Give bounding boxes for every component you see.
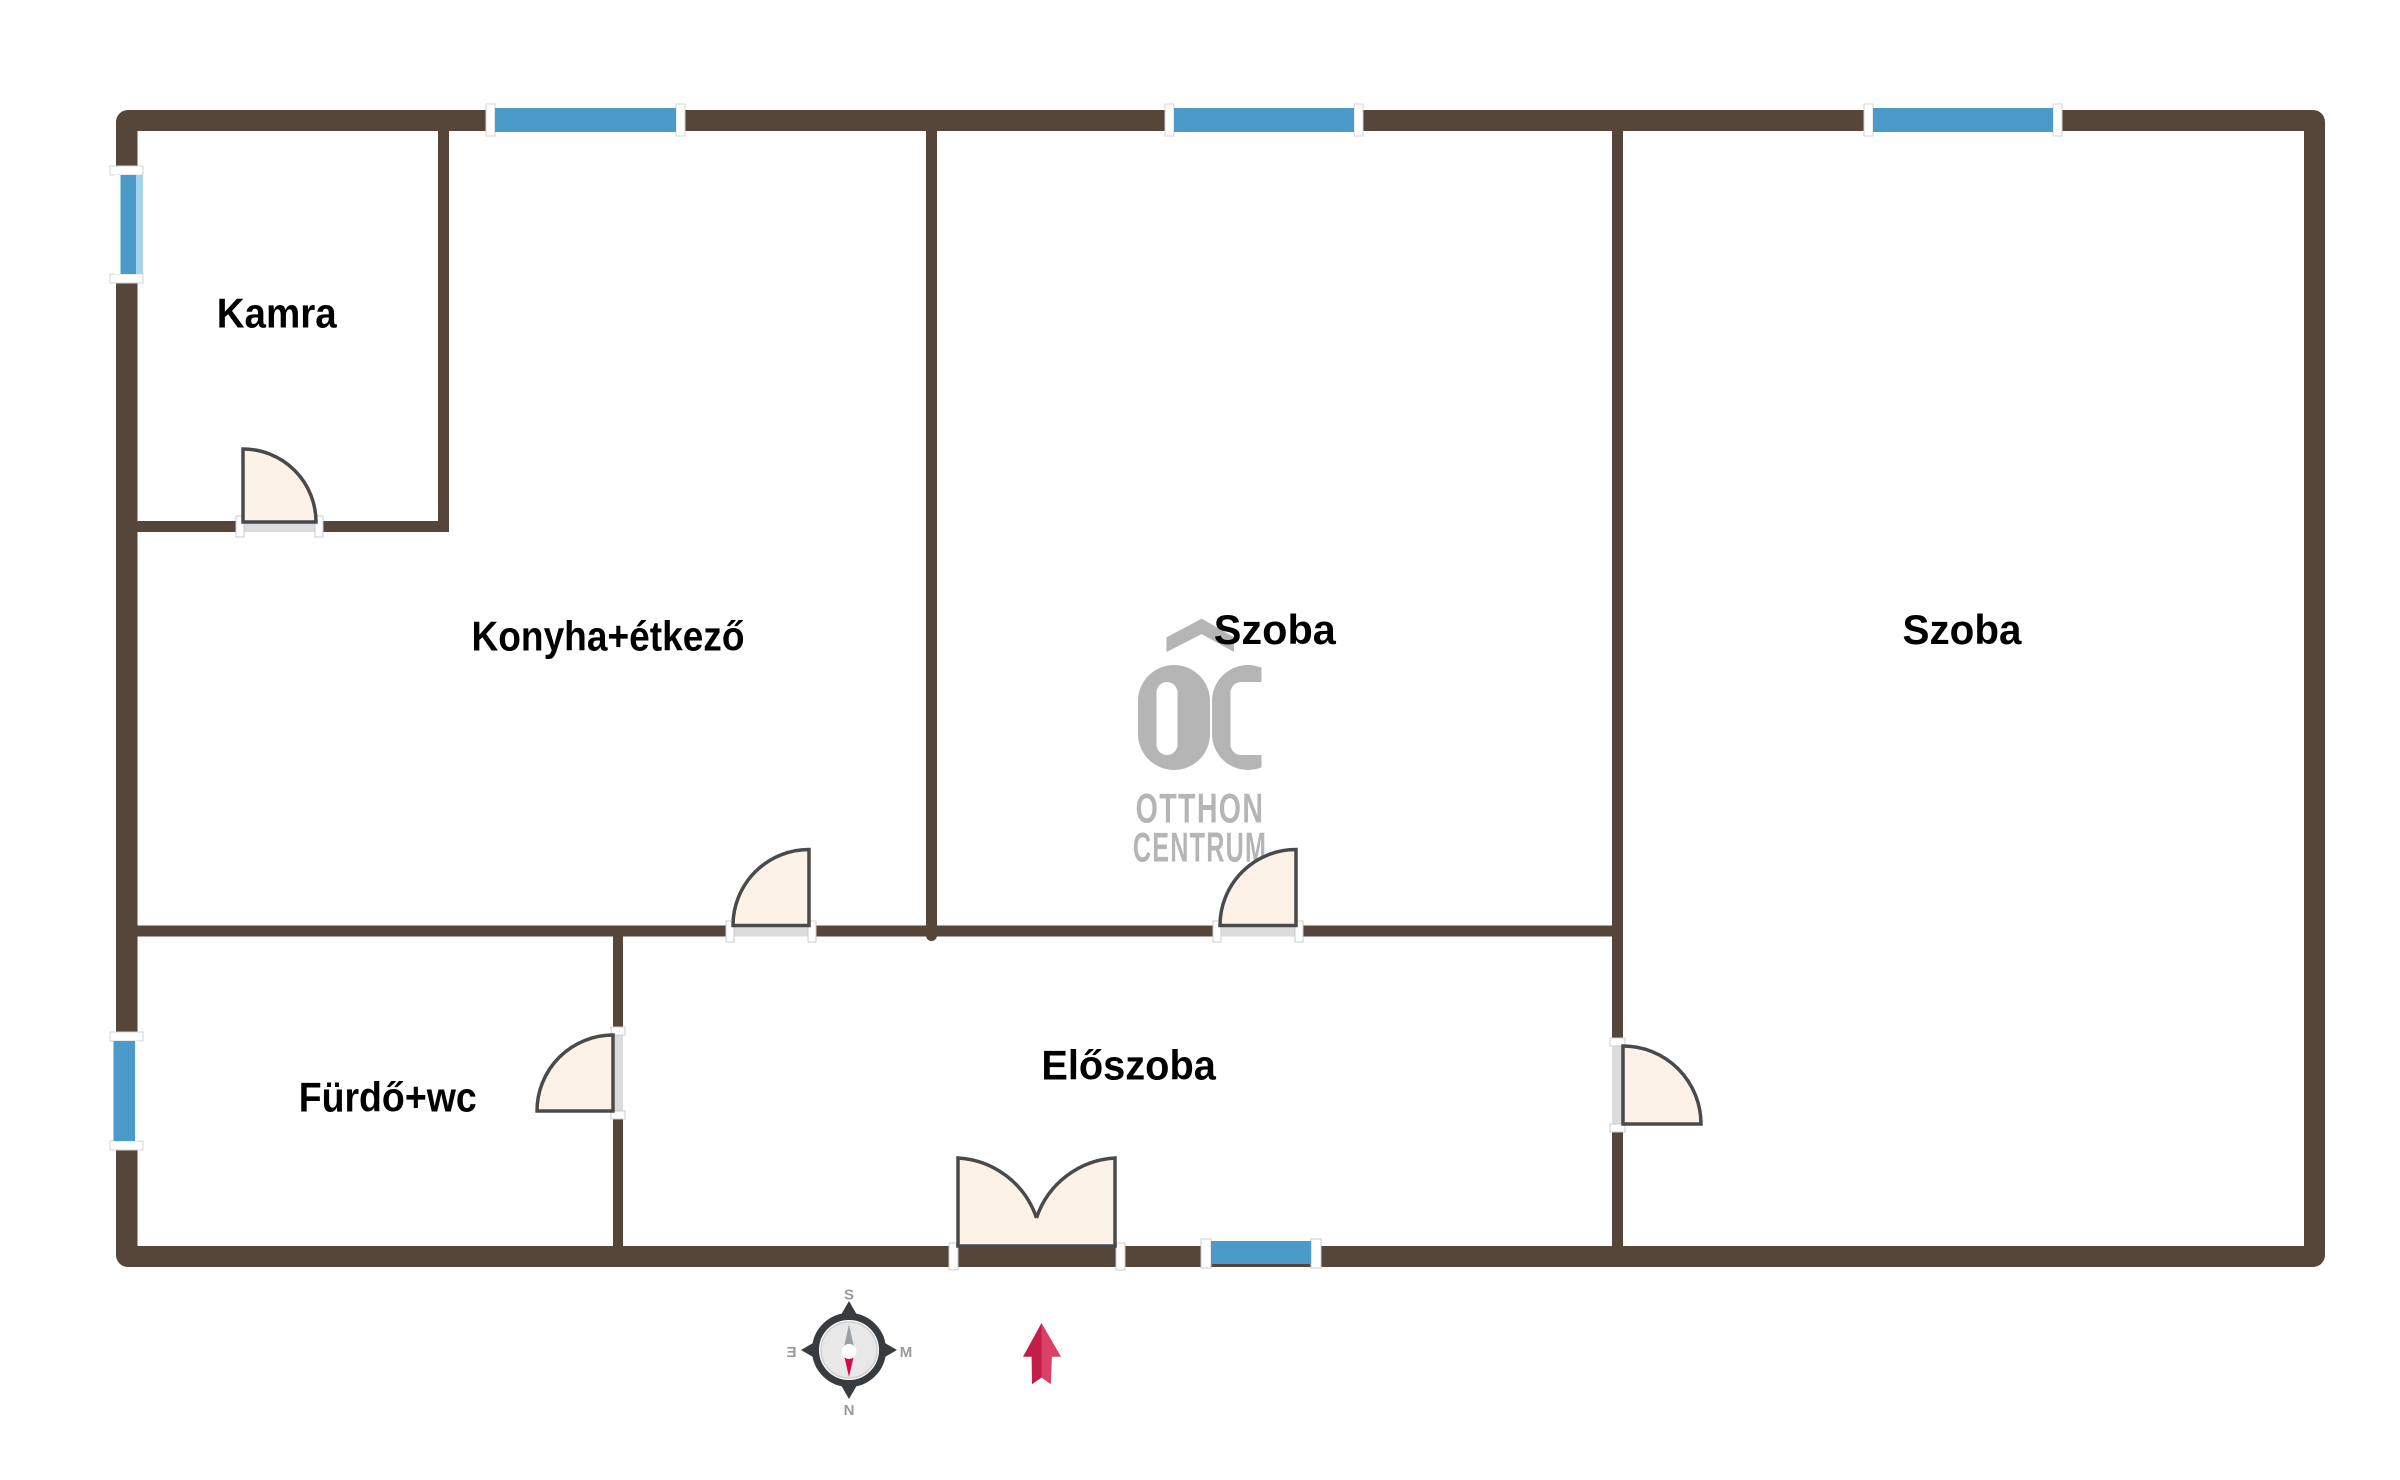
svg-text:Fürdő+wc: Fürdő+wc xyxy=(299,1074,477,1121)
svg-text:S: S xyxy=(844,1287,854,1304)
svg-text:Konyha+étkező: Konyha+étkező xyxy=(472,613,745,660)
svg-text:Szoba: Szoba xyxy=(1214,606,1337,653)
svg-text:N: N xyxy=(844,1402,855,1419)
svg-text:M: M xyxy=(900,1344,913,1361)
svg-text:CENTRUM: CENTRUM xyxy=(1133,825,1267,871)
svg-text:Szoba: Szoba xyxy=(1903,606,2023,653)
svg-text:E: E xyxy=(786,1344,796,1361)
svg-text:Kamra: Kamra xyxy=(217,289,338,336)
svg-text:Előszoba: Előszoba xyxy=(1041,1042,1216,1089)
